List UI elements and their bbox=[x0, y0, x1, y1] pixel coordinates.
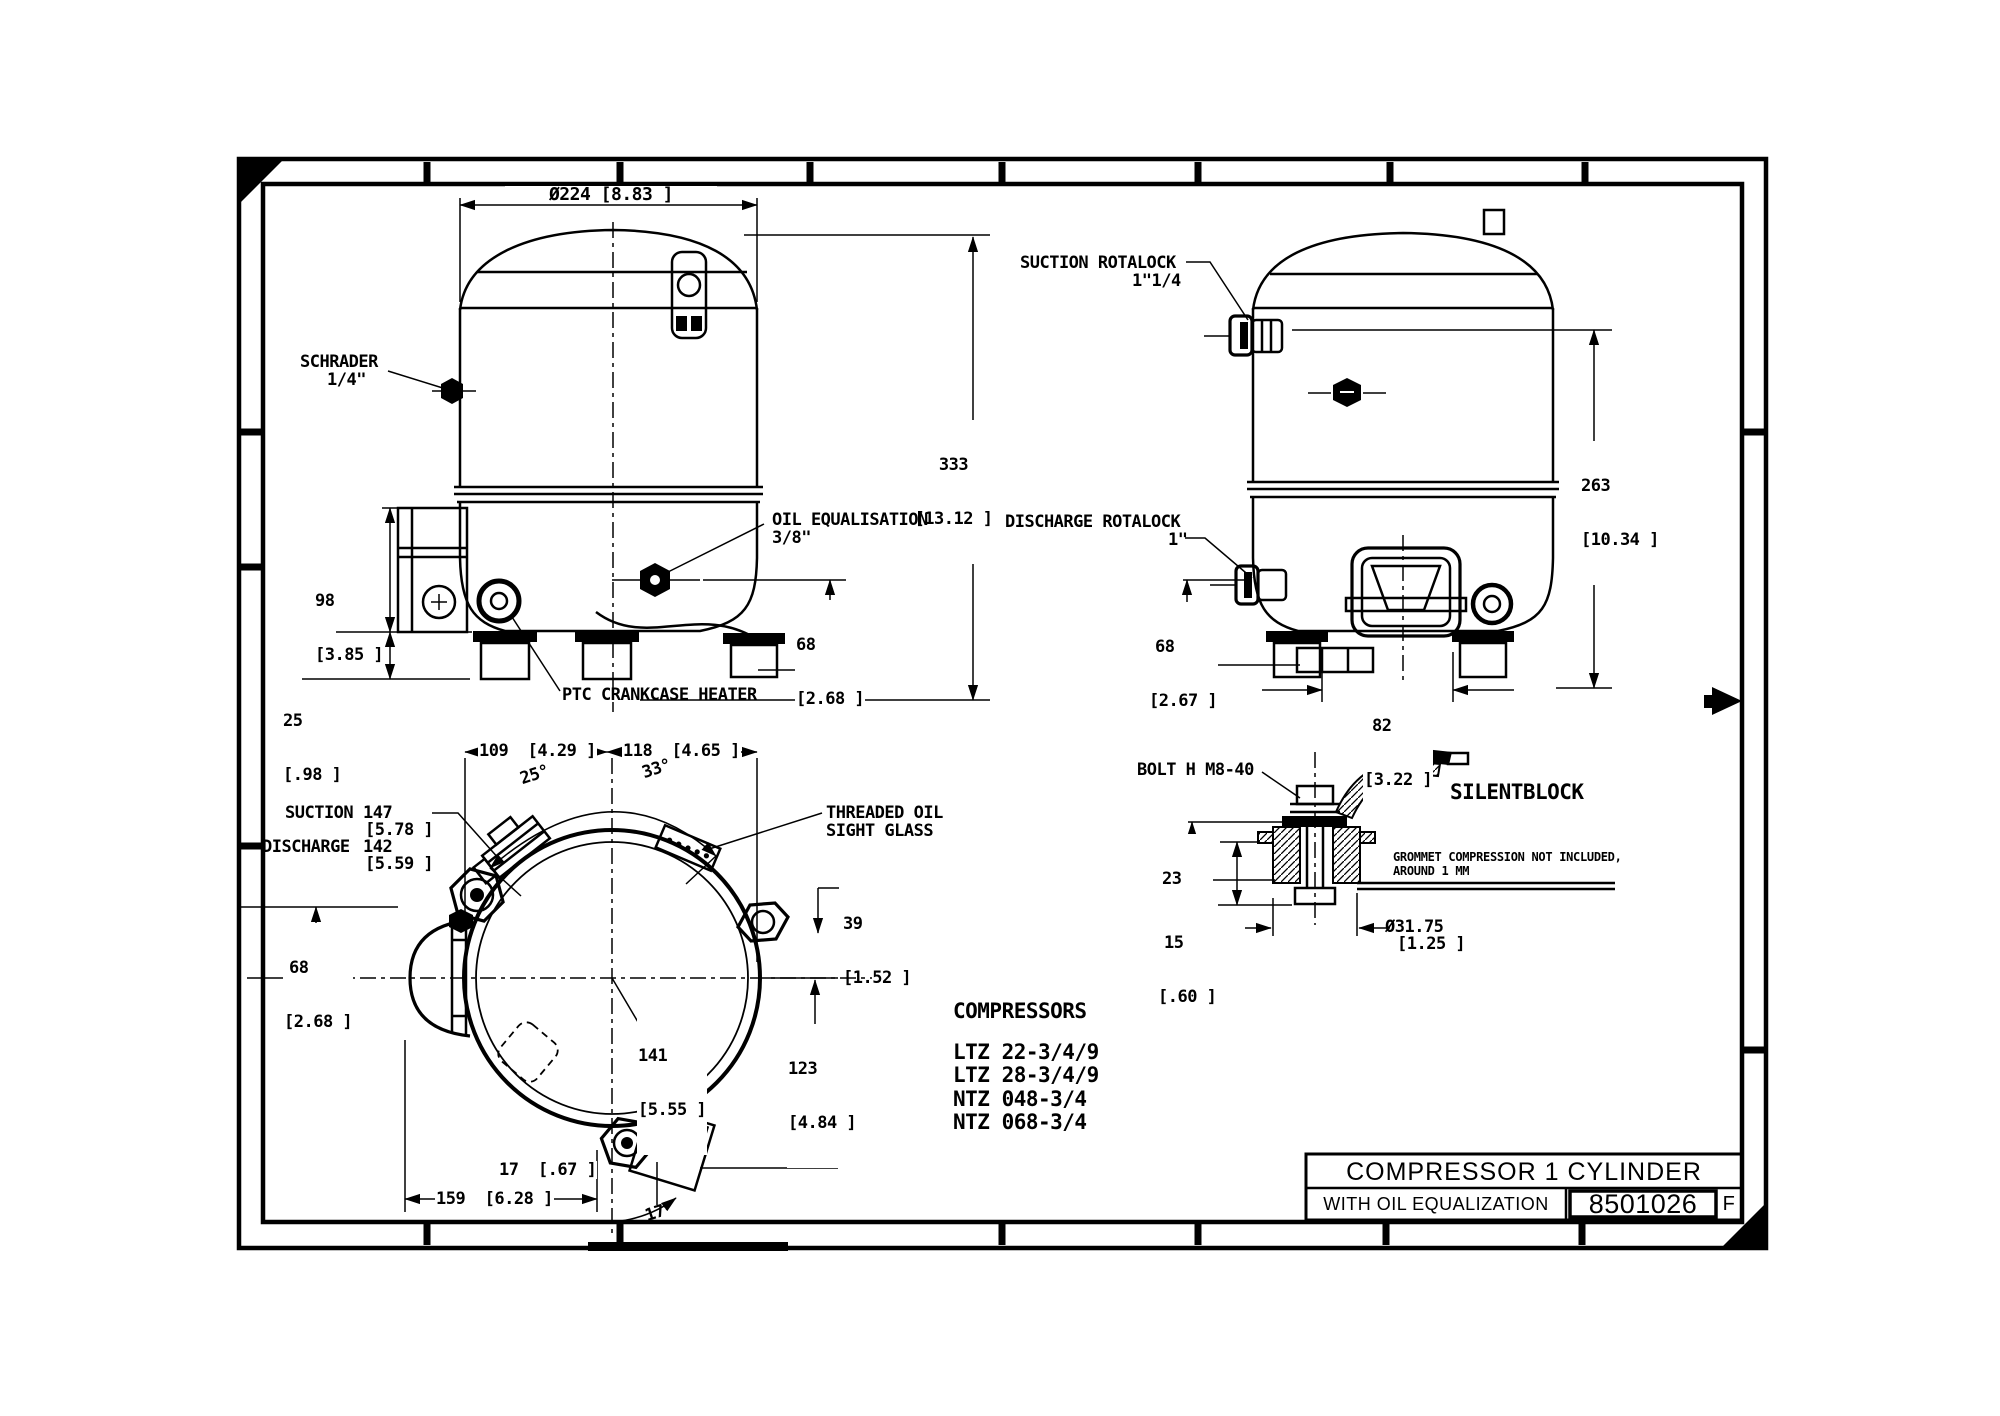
compressor-model-2: LTZ 28-3/4/9 bbox=[953, 1064, 1099, 1088]
grommet-note-1: GROMMET COMPRESSION NOT INCLUDED, bbox=[1393, 850, 1622, 864]
mounting-feet-side bbox=[1266, 631, 1514, 677]
front-view-linework bbox=[302, 198, 990, 712]
dim-25-in: [.98 ] bbox=[283, 766, 341, 784]
dim-17: 17 [.67 ] bbox=[498, 1161, 597, 1179]
sight-glass-label-2: SIGHT GLASS bbox=[826, 822, 933, 840]
bolt-label: BOLT H M8-40 bbox=[1137, 761, 1254, 779]
discharge-rotalock-fitting bbox=[1210, 566, 1286, 604]
schrader-size: 1/4" bbox=[327, 371, 366, 389]
drawing-sheet: Ø224 [8.83 ] SCHRADER 1/4" 333 [13.12 ] … bbox=[0, 0, 2000, 1416]
dim-68-side-mm: 68 bbox=[1149, 638, 1217, 656]
crankcase-heater-grommet bbox=[479, 581, 519, 621]
dim-15-mm: 15 bbox=[1158, 934, 1216, 952]
dim-39-in: [1.52 ] bbox=[843, 969, 911, 987]
side-view-dimensions bbox=[1180, 330, 1612, 702]
bolt-leader bbox=[1262, 772, 1300, 798]
border-arrow-icon bbox=[1704, 687, 1742, 715]
terminal-box bbox=[398, 508, 467, 632]
compressor-model-1: LTZ 22-3/4/9 bbox=[953, 1041, 1099, 1065]
mounting-feet-front bbox=[473, 631, 785, 679]
schrader-fitting bbox=[432, 378, 476, 404]
silentblock-title: SILENTBLOCK bbox=[1450, 783, 1584, 801]
grommet-left bbox=[1273, 827, 1300, 883]
grommet-right bbox=[1333, 827, 1360, 883]
suction-rotalock-size: 1"1/4 bbox=[1132, 272, 1181, 290]
title-block-title: COMPRESSOR 1 CYLINDER bbox=[1306, 1158, 1742, 1186]
title-block-drawing-number: 8501026 bbox=[1570, 1190, 1716, 1218]
dim-23-mm: 23 bbox=[1154, 870, 1212, 888]
dim-82-mm: 82 bbox=[1364, 717, 1432, 735]
suction-rotalock-label: SUCTION ROTALOCK bbox=[1020, 254, 1176, 272]
body-plug bbox=[1308, 378, 1386, 407]
ptc-heater-label: PTC CRANKCASE HEATER bbox=[562, 686, 757, 704]
dim-109: 109 [4.29 ] bbox=[478, 742, 597, 760]
compressor-model-3: NTZ 048-3/4 bbox=[953, 1088, 1087, 1112]
schrader-leader bbox=[388, 371, 446, 389]
dim-82-in: [3.22 ] bbox=[1364, 771, 1432, 789]
sight-glass-label-1: THREADED OIL bbox=[826, 804, 943, 822]
suction-port-label: SUCTION bbox=[285, 804, 353, 822]
dim-333-mm: 333 bbox=[906, 456, 1001, 474]
side-grommet bbox=[1473, 585, 1511, 623]
dim-123-in: [4.84 ] bbox=[788, 1114, 856, 1132]
dim-141-in: [5.55 ] bbox=[638, 1101, 706, 1119]
dim-98-in: [3.85 ] bbox=[315, 646, 383, 664]
dim-141-mm: 141 bbox=[638, 1047, 706, 1065]
oil-eq-label: OIL EQUALISATION bbox=[772, 511, 928, 529]
dim-diameter-224: Ø224 [8.83 ] bbox=[505, 186, 717, 204]
dim-123-mm: 123 bbox=[788, 1060, 856, 1078]
discharge-leader bbox=[1185, 538, 1252, 578]
compressors-heading: COMPRESSORS bbox=[953, 1000, 1087, 1024]
dim-98-mm: 98 bbox=[315, 592, 383, 610]
dim-39-mm: 39 bbox=[843, 915, 911, 933]
discharge-adapter bbox=[1346, 548, 1466, 636]
dim-118: 118 [4.65 ] bbox=[622, 742, 741, 760]
dim-15-in: [.60 ] bbox=[1158, 988, 1216, 1006]
discharge-rotalock-label: DISCHARGE ROTALOCK bbox=[1005, 513, 1180, 531]
dim-68-top-in: [2.68 ] bbox=[284, 1013, 352, 1031]
oil-eq-size: 3/8" bbox=[772, 529, 811, 547]
oil-equalisation-fitting bbox=[612, 563, 700, 597]
front-view-dimensions bbox=[302, 198, 990, 700]
dim-263-mm: 263 bbox=[1581, 477, 1659, 495]
title-block-subtitle: WITH OIL EQUALIZATION bbox=[1306, 1194, 1566, 1214]
lifting-lug bbox=[672, 252, 706, 338]
grommet-note-2: AROUND 1 MM bbox=[1393, 864, 1469, 878]
side-view-linework bbox=[1180, 210, 1612, 715]
discharge-rotalock-size: 1" bbox=[1168, 531, 1187, 549]
dim-68-side-in: [2.67 ] bbox=[1149, 692, 1217, 710]
dim-263-in: [10.34 ] bbox=[1581, 531, 1659, 549]
compressor-model-4: NTZ 068-3/4 bbox=[953, 1111, 1087, 1135]
suction-leader bbox=[1186, 262, 1248, 320]
discharge-port-in: [5.59 ] bbox=[365, 855, 433, 873]
fold-mark bbox=[588, 1242, 788, 1251]
oil-glass-nut bbox=[738, 903, 788, 941]
schrader-label: SCHRADER bbox=[300, 353, 378, 371]
suction-rotalock-fitting bbox=[1204, 316, 1282, 355]
dim-68-front-mm: 68 bbox=[796, 636, 864, 654]
sight-glass-leader bbox=[706, 813, 822, 850]
oil-eq-leader bbox=[668, 524, 764, 572]
dim-68-top-mm: 68 bbox=[284, 959, 352, 977]
dim-31-75-in: [1.25 ] bbox=[1397, 935, 1465, 953]
title-block-revision: F bbox=[1716, 1193, 1742, 1215]
dome-tab bbox=[1484, 210, 1504, 234]
discharge-port-label: DISCHARGE bbox=[262, 838, 350, 856]
dim-68-front-in: [2.68 ] bbox=[796, 690, 864, 708]
dim-25-mm: 25 bbox=[283, 712, 341, 730]
dim-159: 159 [6.28 ] bbox=[435, 1190, 554, 1208]
hidden-box-outline bbox=[494, 1018, 562, 1086]
